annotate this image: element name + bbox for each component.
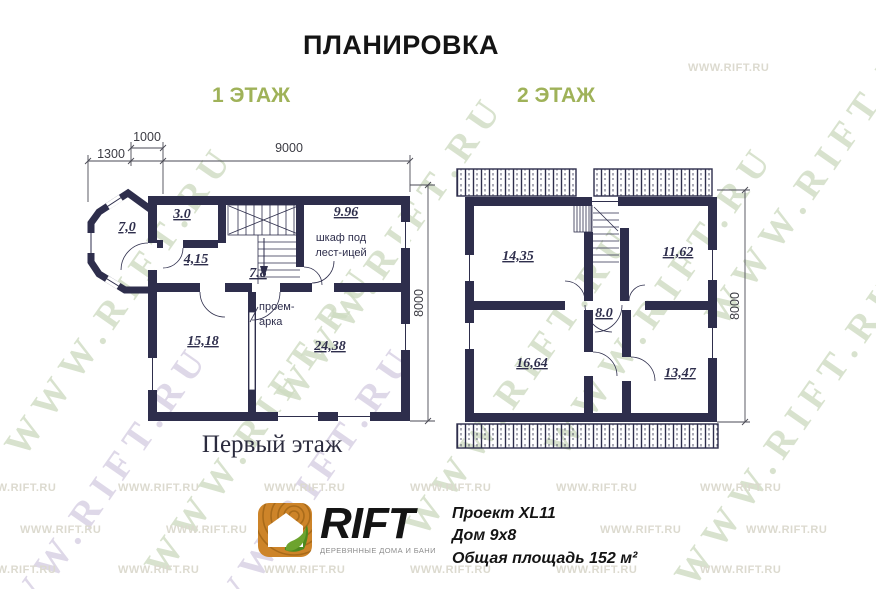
- dim-9000: 9000: [275, 141, 303, 155]
- room-label-3-0: 3.0: [172, 207, 191, 222]
- floor-plans-drawing: 1000 1300 9000 8000: [0, 0, 876, 589]
- floor2-plan: 8000 14,35 11,62 8.0 16,64 13,47: [457, 169, 750, 448]
- dim-1000: 1000: [133, 130, 161, 144]
- dim-1300: 1300: [97, 147, 125, 161]
- floor1-label: 1 ЭТАЖ: [212, 84, 290, 108]
- arch-note-line1: проем-: [259, 301, 295, 313]
- closet-note-line1: шкаф под: [316, 232, 367, 244]
- arch-note-line2: арка: [259, 316, 283, 328]
- room-label-24-38: 24,38: [313, 339, 346, 354]
- dim-8000-f1: 8000: [412, 289, 426, 317]
- floor2-dimensions: 8000: [717, 187, 750, 425]
- floor1-plan: 1000 1300 9000 8000: [85, 130, 435, 458]
- bay-window-wall: [91, 193, 151, 290]
- brand-name: RIFT: [320, 503, 438, 545]
- floor2-stairs: [574, 205, 619, 265]
- room-label-9-96: 9.96: [334, 205, 359, 220]
- house-size: Дом 9x8: [452, 525, 637, 547]
- project-info: Проект XL11 Дом 9x8 Общая площадь 152 м²: [452, 503, 637, 570]
- floor2-doors: [565, 281, 655, 381]
- dim-8000-f2: 8000: [728, 292, 742, 320]
- room-label-4-15: 4,15: [183, 252, 209, 267]
- rift-logo-icon: [258, 503, 312, 557]
- closet-note-line2: лест-ицей: [315, 247, 366, 259]
- arch-opening: [249, 312, 255, 390]
- brand-tagline: ДЕРЕВЯННЫЕ ДОМА И БАНИ: [320, 546, 438, 555]
- room-label-11-62: 11,62: [663, 245, 694, 260]
- room-label-15-18: 15,18: [187, 334, 219, 349]
- room-label-13-47: 13,47: [664, 366, 697, 381]
- floor-plan-page: WWW.RIFT.RUWWW.RIFT.RUWWW.RIFT.RUWWW.RIF…: [0, 0, 876, 589]
- floor1-caption: Первый этаж: [202, 431, 343, 458]
- room-label-7-8: 7.8: [249, 266, 267, 281]
- project-name: Проект XL11: [452, 503, 637, 525]
- total-area: Общая площадь 152 м²: [452, 548, 637, 570]
- room-label-14-35: 14,35: [502, 249, 534, 264]
- room-label-8-0: 8.0: [595, 306, 613, 321]
- room-label-16-64: 16,64: [516, 356, 548, 371]
- footer: RIFT ДЕРЕВЯННЫЕ ДОМА И БАНИ Проект XL11 …: [258, 503, 637, 570]
- floor2-label: 2 ЭТАЖ: [517, 84, 595, 108]
- room-label-7-0: 7,0: [118, 220, 136, 235]
- page-title: ПЛАНИРОВКА: [303, 30, 499, 61]
